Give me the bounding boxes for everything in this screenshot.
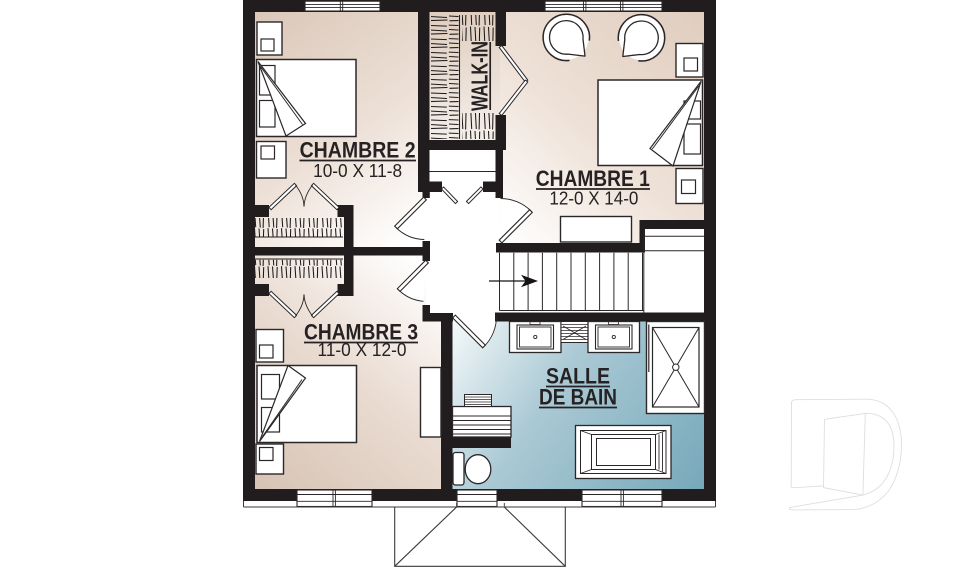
- svg-text:12-0 X 14-0: 12-0 X 14-0: [549, 188, 638, 209]
- svg-text:WALK-IN: WALK-IN: [467, 41, 493, 111]
- svg-text:DE BAIN: DE BAIN: [539, 385, 617, 410]
- svg-text:10-0 X 11-8: 10-0 X 11-8: [313, 160, 402, 181]
- svg-text:11-0 X 12-0: 11-0 X 12-0: [318, 339, 407, 360]
- svg-text:CHAMBRE 2: CHAMBRE 2: [300, 138, 416, 163]
